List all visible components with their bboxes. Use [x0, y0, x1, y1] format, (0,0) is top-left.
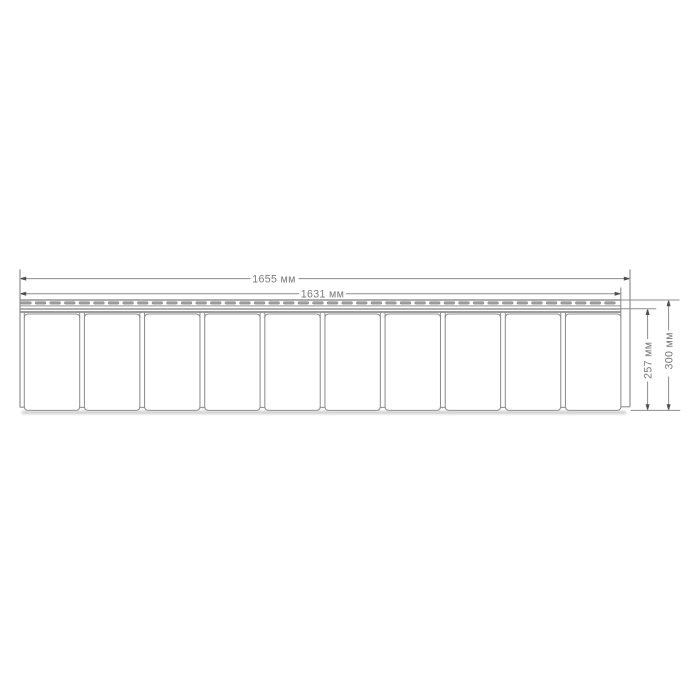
svg-text:1655 мм: 1655 мм: [252, 273, 296, 285]
svg-text:1631 мм: 1631 мм: [301, 288, 345, 300]
svg-text:300 мм: 300 мм: [663, 332, 675, 369]
svg-text:257 мм: 257 мм: [642, 342, 654, 379]
